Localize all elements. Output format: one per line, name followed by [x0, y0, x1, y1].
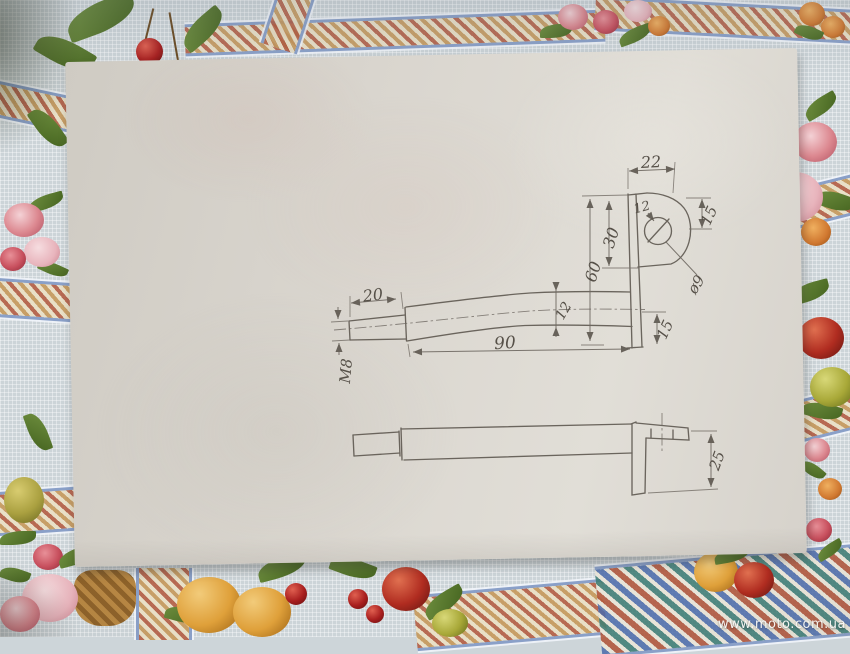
rod-centerline	[334, 309, 645, 330]
dim-label-22: 22	[639, 152, 661, 172]
watermark: www.moto.com.ua	[718, 617, 846, 632]
dim-label-60: 60	[581, 259, 605, 284]
dim-label-20: 20	[361, 284, 385, 305]
dim-label-25: 25	[705, 449, 729, 474]
bottom-view-outline	[353, 422, 689, 495]
technical-drawing: 22 15 12 30 60 12 90 15 20 M8 ø9 25	[0, 0, 850, 637]
dim-label-30: 30	[599, 225, 623, 250]
dim-label-hole-dia: ø9	[683, 271, 709, 298]
dim-label-M8: M8	[336, 358, 356, 385]
dim-label-90: 90	[493, 333, 516, 354]
dim-label-15-top: 15	[697, 203, 721, 228]
